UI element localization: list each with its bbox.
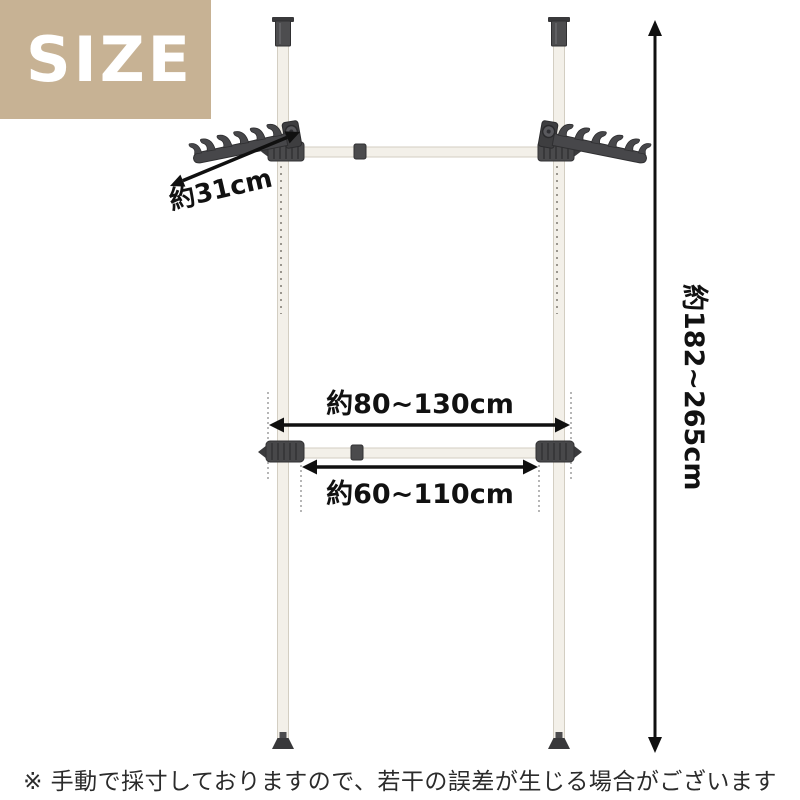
height-label: 約182~265cm — [677, 284, 709, 484]
pole-adjustment-holes — [281, 166, 557, 314]
size-badge-label: SIZE — [26, 23, 193, 96]
lower-bar-left-clamp — [258, 441, 304, 462]
upper-hanging-bar — [288, 147, 554, 157]
size-badge: SIZE — [0, 0, 211, 119]
height-arrow — [648, 20, 662, 753]
lower-width-arrow — [302, 460, 538, 475]
lower-bar-connector — [351, 445, 363, 460]
right-tension-cap — [548, 17, 570, 46]
right-foot — [548, 732, 570, 749]
upper-width-label: 約80~130cm — [300, 389, 540, 420]
size-diagram-page: SIZE 約31cm 約80~130cm 約60~110cm 約182~265c… — [0, 0, 800, 800]
lower-width-label: 約60~110cm — [300, 479, 540, 510]
lower-bar-right-clamp — [536, 441, 582, 462]
left-tension-cap — [272, 17, 294, 46]
measurement-disclaimer-note: ※ 手動で採寸しておりますので、若干の誤差が生じる場合がございます — [0, 762, 800, 796]
left-foot — [272, 732, 294, 749]
lower-hanging-bar — [272, 448, 568, 458]
upper-bar-connector — [354, 144, 366, 159]
